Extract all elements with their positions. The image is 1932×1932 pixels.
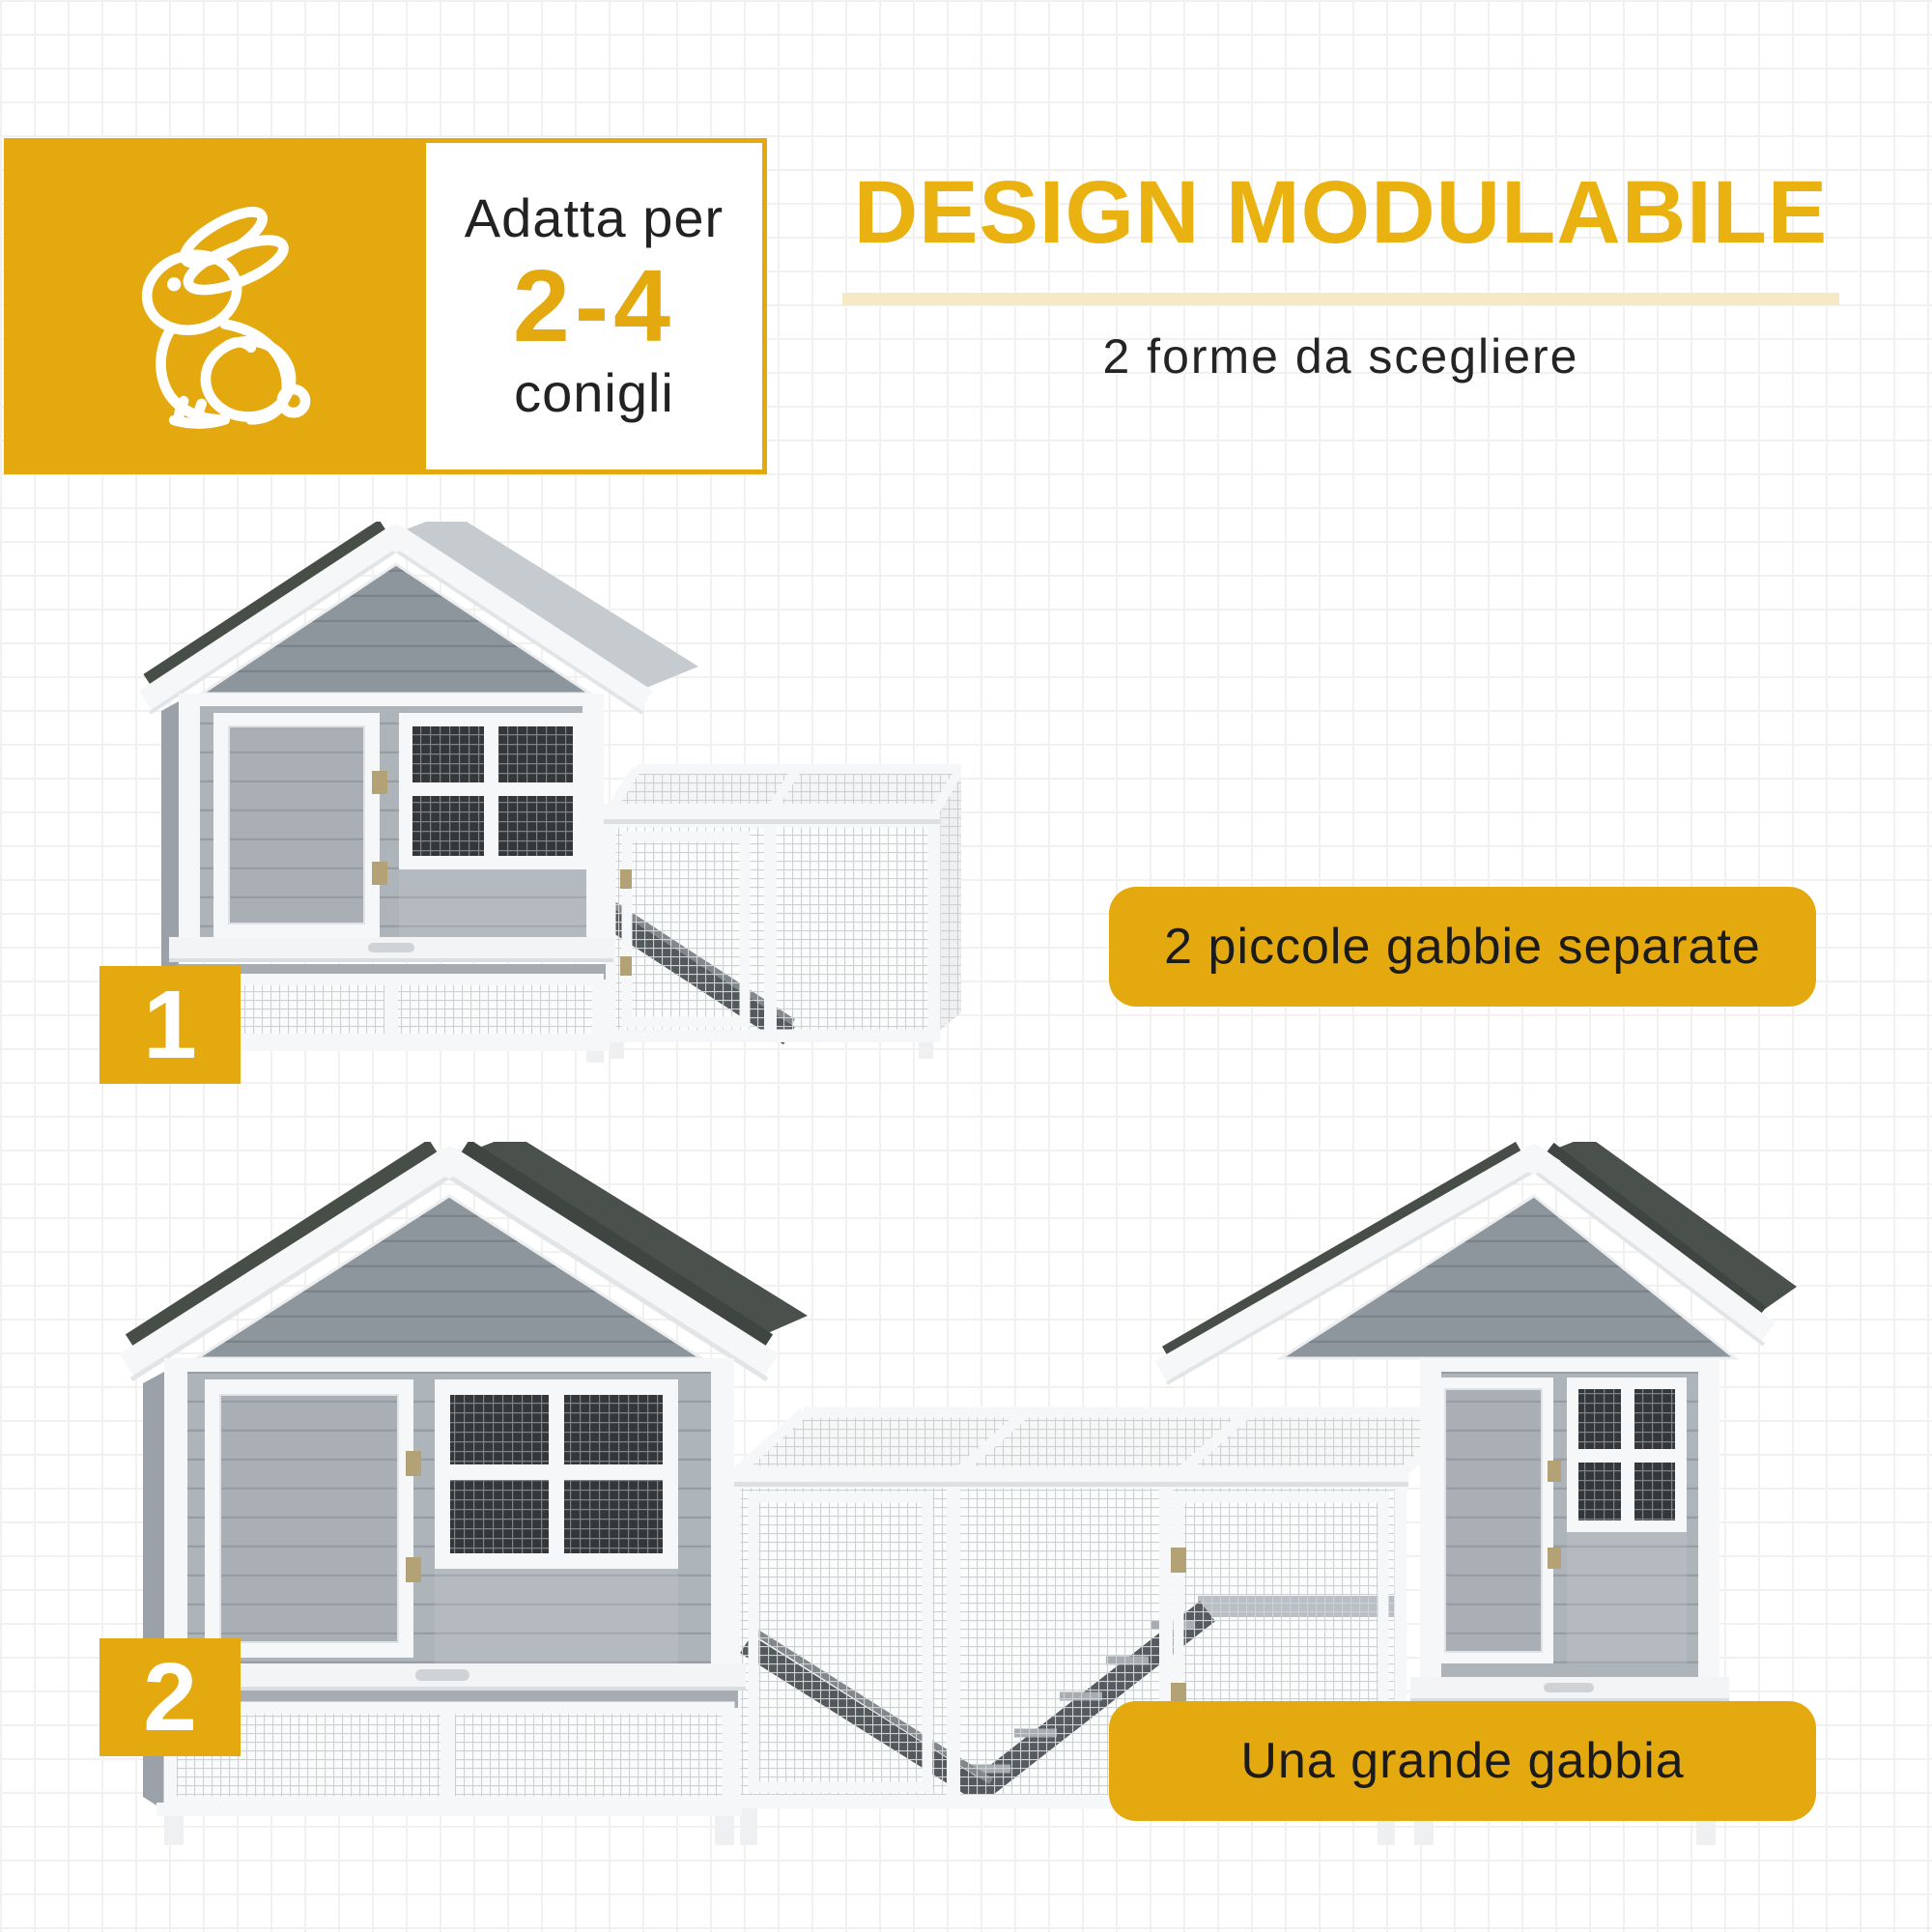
page-subtitle: 2 forme da scegliere bbox=[829, 328, 1853, 384]
title-underline bbox=[842, 293, 1839, 305]
hutch-door bbox=[1434, 1378, 1561, 1663]
hutch-door bbox=[205, 1379, 421, 1658]
capacity-prefix: Adatta per bbox=[465, 187, 724, 249]
capacity-text-box: Adatta per 2-4 conigli bbox=[421, 138, 767, 474]
rabbit-icon-box bbox=[4, 138, 421, 474]
mesh-window bbox=[1567, 1378, 1687, 1532]
infographic-page: Adatta per 2-4 conigli DESIGN MODULABILE… bbox=[0, 0, 1932, 1932]
mesh-window bbox=[435, 1379, 678, 1569]
tray bbox=[153, 1663, 746, 1708]
run-section bbox=[580, 769, 961, 1059]
capacity-suffix: conigli bbox=[514, 362, 674, 424]
option-2-caption: Una grande gabbia bbox=[1109, 1701, 1816, 1821]
section-header: DESIGN MODULABILE 2 forme da scegliere bbox=[829, 162, 1853, 384]
option-2-badge: 2 bbox=[99, 1638, 241, 1756]
page-title: DESIGN MODULABILE bbox=[829, 162, 1853, 264]
rabbit-eye bbox=[167, 277, 181, 291]
hutch-image-config-1 bbox=[140, 522, 961, 1063]
option-1-caption: 2 piccole gabbie separate bbox=[1109, 887, 1816, 1007]
option-1-badge: 1 bbox=[99, 966, 241, 1084]
capacity-range: 2-4 bbox=[513, 250, 675, 363]
lower-run bbox=[156, 1708, 742, 1845]
mesh-window bbox=[399, 713, 586, 869]
hutch-door bbox=[213, 713, 387, 937]
rabbit-icon bbox=[89, 177, 336, 436]
